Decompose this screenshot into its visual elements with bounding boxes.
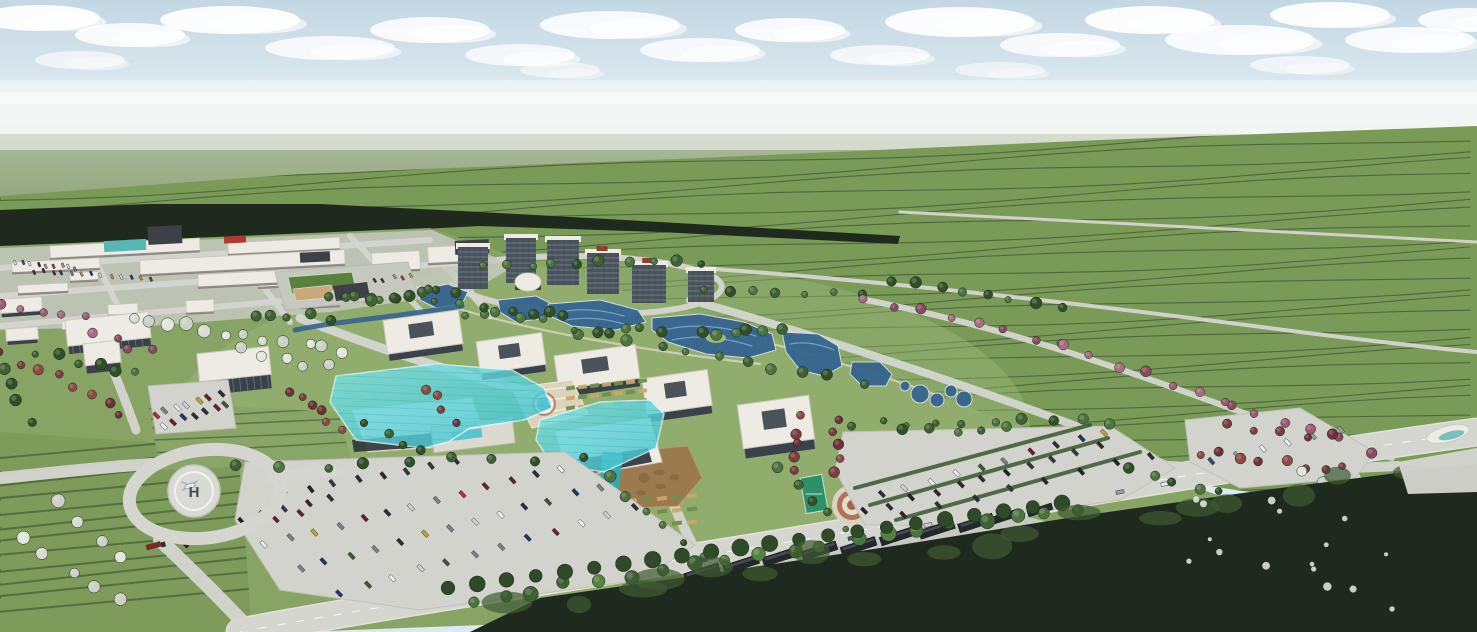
tree-highlight xyxy=(29,419,33,423)
canopy-blob xyxy=(1211,494,1242,513)
helipad-label: H xyxy=(189,484,200,501)
industrial-dark-block xyxy=(148,225,183,245)
white-blossom xyxy=(1350,586,1357,593)
tree-highlight xyxy=(1222,399,1225,402)
tree-highlight xyxy=(1086,352,1089,355)
canopy-blob xyxy=(633,568,685,590)
helipad-h-marking: H xyxy=(189,484,200,501)
tree-highlight xyxy=(358,459,363,464)
tree-highlight xyxy=(286,389,290,393)
tree-highlight xyxy=(1282,420,1286,424)
tree-highlight xyxy=(823,370,828,375)
tree-highlight xyxy=(1368,449,1373,454)
white-blossom xyxy=(1216,549,1222,555)
tree-highlight xyxy=(406,458,411,463)
tree-highlight xyxy=(594,576,600,582)
tree-highlight xyxy=(1196,485,1201,490)
tree-highlight xyxy=(797,412,801,416)
hedge-bush xyxy=(732,539,749,556)
canopy-blob xyxy=(1000,526,1039,542)
tree-highlight xyxy=(699,261,702,264)
hedge-bush xyxy=(851,525,864,538)
cloud xyxy=(1131,14,1222,34)
tree-highlight xyxy=(621,493,626,498)
soil-patch xyxy=(636,490,646,495)
cloud xyxy=(22,13,106,31)
tree-highlight xyxy=(58,312,61,315)
tree-highlight xyxy=(881,418,884,421)
tree-highlight xyxy=(958,421,961,424)
tree-highlight xyxy=(69,384,73,388)
tree-highlight xyxy=(1079,415,1084,420)
horizon-haze-core xyxy=(0,92,1477,134)
tree-highlight xyxy=(837,456,841,460)
tree-highlight xyxy=(985,291,989,295)
tree-highlight xyxy=(773,463,778,468)
hedge-bush xyxy=(909,517,922,530)
canopy-blob xyxy=(1324,467,1351,485)
tree-highlight xyxy=(462,313,465,316)
cloud xyxy=(67,58,130,71)
hedge-bush xyxy=(499,573,514,588)
tree-highlight xyxy=(1198,452,1201,455)
white-blossom xyxy=(1277,509,1282,514)
tree-highlight xyxy=(993,419,996,422)
tree-highlight xyxy=(258,352,263,357)
cloud xyxy=(1042,41,1126,58)
tree-highlight xyxy=(792,430,797,435)
cloud xyxy=(774,26,851,43)
tree-highlight xyxy=(149,346,153,350)
soil-patch xyxy=(670,474,680,480)
pond xyxy=(900,381,910,391)
tree-highlight xyxy=(644,509,647,512)
cloud xyxy=(682,46,766,63)
tree-highlight xyxy=(825,509,829,513)
tree-highlight xyxy=(323,419,326,422)
tree-highlight xyxy=(199,326,205,332)
tree-highlight xyxy=(1116,364,1121,369)
tree-highlight xyxy=(976,319,980,323)
tree-highlight xyxy=(89,391,93,395)
tree-highlight xyxy=(53,496,59,502)
cloud xyxy=(114,31,191,48)
soil-patch xyxy=(639,473,650,483)
tree-highlight xyxy=(1305,435,1308,438)
tree-highlight xyxy=(830,429,834,433)
canopy-blob xyxy=(794,540,830,564)
tree-highlight xyxy=(343,294,347,298)
tree-highlight xyxy=(239,331,243,335)
tree-highlight xyxy=(34,366,39,371)
glass-roof-building xyxy=(104,239,147,252)
tree-highlight xyxy=(606,472,611,477)
tree-highlight xyxy=(452,289,457,294)
white-blossom xyxy=(1208,537,1212,541)
tree-highlight xyxy=(115,336,118,339)
tree-highlight xyxy=(299,363,303,367)
hedge-bush xyxy=(996,504,1011,519)
tree-highlight xyxy=(741,325,746,330)
white-blossom xyxy=(1389,606,1394,611)
pond xyxy=(930,393,944,407)
tree-highlight xyxy=(307,309,312,314)
tree-highlight xyxy=(627,572,634,579)
tree-highlight xyxy=(98,537,103,542)
tree-highlight xyxy=(163,319,169,325)
tree-highlight xyxy=(860,296,864,300)
tree-highlight xyxy=(73,518,78,523)
tree-highlight xyxy=(18,362,21,365)
tree-highlight xyxy=(1224,420,1228,424)
tree-highlight xyxy=(1106,420,1111,425)
tree-highlight xyxy=(831,289,834,292)
tree-highlight xyxy=(470,598,475,603)
tree-highlight xyxy=(1013,510,1019,516)
tree-highlight xyxy=(503,261,507,265)
tree-highlight xyxy=(390,294,395,299)
tree-highlight xyxy=(891,304,895,308)
tree-highlight xyxy=(7,379,12,384)
tree-highlight xyxy=(531,264,534,267)
tree-highlight xyxy=(1236,454,1241,459)
tree-highlight xyxy=(1017,414,1022,419)
tree-highlight xyxy=(778,325,783,330)
tree-highlight xyxy=(759,327,764,332)
tree-highlight xyxy=(361,420,364,423)
tree-highlight xyxy=(791,467,795,471)
tree-highlight xyxy=(830,468,835,473)
tree-highlight xyxy=(525,588,532,595)
tree-highlight xyxy=(1307,425,1312,430)
tree-highlight xyxy=(1050,417,1054,421)
hedge-bush xyxy=(557,564,572,579)
tree-highlight xyxy=(530,310,535,315)
tree-highlight xyxy=(284,315,287,318)
red-accent-building xyxy=(224,235,246,243)
tree-highlight xyxy=(350,292,355,297)
hedge-bush xyxy=(880,521,893,534)
tree-highlight xyxy=(252,312,257,317)
tree-highlight xyxy=(488,455,492,459)
tree-highlight xyxy=(1152,472,1156,476)
tree-highlight xyxy=(71,569,75,573)
tree-highlight xyxy=(861,381,865,385)
canopy-blob xyxy=(742,566,778,581)
canopy-blob xyxy=(1283,484,1315,506)
tree-highlight xyxy=(237,343,242,348)
cloud xyxy=(1285,63,1355,76)
tree-highlight xyxy=(933,421,936,424)
tree-highlight xyxy=(939,283,944,288)
canopy-blob xyxy=(927,545,961,560)
tree-highlight xyxy=(744,358,748,362)
tree-highlight xyxy=(978,428,981,431)
tree-highlight xyxy=(911,278,916,283)
tree-highlight xyxy=(726,288,731,293)
white-blossom xyxy=(1186,559,1191,564)
tree-highlight xyxy=(794,440,798,444)
tree-highlight xyxy=(132,369,135,372)
tree-highlight xyxy=(89,582,95,588)
tree-highlight xyxy=(636,324,640,328)
tree-highlight xyxy=(116,594,122,600)
tree-highlight xyxy=(1003,423,1008,428)
tree-highlight xyxy=(771,289,775,293)
tree-highlight xyxy=(547,260,551,264)
tree-highlight xyxy=(594,329,599,334)
tree-highlight xyxy=(454,420,457,423)
tree-highlight xyxy=(681,540,684,543)
white-blossom xyxy=(1268,497,1276,505)
tree-highlight xyxy=(338,348,343,353)
dome xyxy=(515,273,541,291)
tree-highlight xyxy=(18,306,21,309)
canopy-blob xyxy=(567,596,592,613)
tree-highlight xyxy=(959,289,963,293)
cloud xyxy=(311,44,402,61)
tree-highlight xyxy=(1251,411,1255,415)
tree-highlight xyxy=(231,461,236,466)
building-roof xyxy=(6,327,39,341)
tree-highlight xyxy=(712,330,717,335)
tree-highlight xyxy=(111,367,116,372)
tree-highlight xyxy=(325,293,329,297)
tree-highlight xyxy=(790,453,795,458)
pond xyxy=(911,385,929,403)
cloud xyxy=(504,51,581,66)
tree-highlight xyxy=(949,315,952,318)
tree-highlight xyxy=(888,278,892,282)
rooftop-core xyxy=(761,408,786,430)
tree-highlight xyxy=(836,417,840,421)
canopy-blob xyxy=(690,557,733,578)
tree-highlight xyxy=(572,328,575,331)
tree-highlight xyxy=(917,305,922,310)
tree-highlight xyxy=(658,328,663,333)
tree-highlight xyxy=(457,300,461,304)
tree-highlight xyxy=(418,288,423,293)
tree-highlight xyxy=(1339,464,1342,467)
canopy-blob xyxy=(847,552,881,566)
tree-highlight xyxy=(1142,367,1147,372)
tree-highlight xyxy=(97,360,102,365)
tree-highlight xyxy=(144,317,149,322)
tree-highlight xyxy=(898,425,903,430)
tree-highlight xyxy=(386,430,390,434)
tree-highlight xyxy=(480,263,483,266)
tree-highlight xyxy=(116,553,121,558)
tree-highlight xyxy=(1006,297,1009,300)
tree-highlight xyxy=(573,261,577,265)
tree-highlight xyxy=(834,440,839,445)
tree-highlight xyxy=(300,394,303,397)
hedge-bush xyxy=(441,581,455,595)
white-blossom xyxy=(1262,562,1270,570)
tree-highlight xyxy=(283,354,288,359)
tree-highlight xyxy=(750,287,754,291)
rendering-canvas: H xyxy=(0,0,1477,632)
tree-highlight xyxy=(37,549,42,554)
tree-highlight xyxy=(275,463,280,468)
hedge-bush xyxy=(762,535,778,551)
tree-highlight xyxy=(843,527,846,530)
tree-highlight xyxy=(1276,428,1280,432)
tree-highlight xyxy=(434,392,438,396)
cloud xyxy=(1312,10,1396,28)
tree-highlight xyxy=(181,318,187,324)
tree-highlight xyxy=(433,287,437,291)
white-blossom xyxy=(1200,500,1207,507)
tree-highlight xyxy=(809,498,813,502)
tree-highlight xyxy=(622,325,626,329)
tree-highlight xyxy=(1215,448,1219,452)
tree-highlight xyxy=(339,427,342,430)
tree-highlight xyxy=(367,296,372,301)
tree-highlight xyxy=(266,311,271,316)
tree-highlight xyxy=(767,365,772,370)
building xyxy=(737,395,816,458)
tree-highlight xyxy=(259,337,263,341)
masterplan-aerial-rendering: H xyxy=(0,0,1477,632)
tree-highlight xyxy=(41,310,45,314)
cloud xyxy=(412,25,496,43)
tree-highlight xyxy=(798,368,803,373)
cloud xyxy=(209,14,307,34)
tree-highlight xyxy=(223,332,227,336)
pond xyxy=(945,385,957,397)
canopy-blob xyxy=(1139,511,1182,525)
tree-highlight xyxy=(802,292,805,295)
hedge-bush xyxy=(529,569,542,582)
tree-highlight xyxy=(318,407,322,411)
tree-highlight xyxy=(317,341,322,346)
tree-highlight xyxy=(55,350,60,355)
hedge-bush xyxy=(674,548,689,563)
pond xyxy=(956,391,972,407)
industrial-dark-block xyxy=(300,251,330,263)
tree-highlight xyxy=(1251,428,1254,431)
tree-highlight xyxy=(652,259,655,262)
tree-highlight xyxy=(11,396,16,401)
tree-highlight xyxy=(1329,430,1334,435)
white-blossom xyxy=(1342,516,1348,522)
tree-highlight xyxy=(1255,458,1259,462)
tree-highlight xyxy=(716,353,720,357)
tree-highlight xyxy=(1170,383,1173,386)
white-blossom xyxy=(1324,542,1329,547)
hedge-bush xyxy=(469,576,485,592)
tree-highlight xyxy=(581,454,585,458)
hedge-bush xyxy=(588,561,601,574)
tree-highlight xyxy=(1000,326,1003,329)
tree-highlight xyxy=(76,361,80,365)
tower-roof-feature xyxy=(597,246,608,251)
tree-highlight xyxy=(606,330,610,334)
hedge-bush xyxy=(937,511,952,526)
tree-highlight xyxy=(622,336,627,341)
cloud xyxy=(589,19,687,39)
tree-highlight xyxy=(438,407,441,410)
tree-highlight xyxy=(405,292,410,297)
tree-highlight xyxy=(626,258,630,262)
tree-highlight xyxy=(124,346,128,350)
tree-highlight xyxy=(559,312,564,317)
tree-highlight xyxy=(1032,299,1037,304)
tree-highlight xyxy=(326,465,330,469)
white-blossom xyxy=(1384,552,1388,556)
tree-highlight xyxy=(926,425,930,429)
tree-highlight xyxy=(116,412,119,415)
tree-highlight xyxy=(859,291,863,295)
canopy-blob xyxy=(1057,505,1101,520)
tree-highlight xyxy=(56,371,60,375)
white-blossom xyxy=(1323,582,1331,590)
tree-highlight xyxy=(660,522,663,525)
tree-highlight xyxy=(1125,464,1130,469)
tree-highlight xyxy=(795,481,799,485)
tree-highlight xyxy=(1033,338,1037,342)
tree-highlight xyxy=(491,308,495,312)
cloud xyxy=(1218,34,1323,55)
building xyxy=(6,327,39,345)
tree-highlight xyxy=(545,307,550,312)
white-blossom xyxy=(1311,566,1316,571)
tree-highlight xyxy=(83,313,86,316)
tree-highlight xyxy=(510,308,514,312)
tree-highlight xyxy=(594,256,599,261)
tree-highlight xyxy=(517,314,521,318)
tree-highlight xyxy=(1196,388,1200,392)
hedge-bush xyxy=(616,556,632,572)
canopy-blob xyxy=(482,592,533,614)
tree-highlight xyxy=(327,317,332,322)
hedge-bush xyxy=(821,529,834,542)
cloud xyxy=(865,52,935,66)
tree-highlight xyxy=(698,328,703,333)
tree-highlight xyxy=(672,256,677,261)
tree-highlight xyxy=(1039,509,1044,514)
tree-highlight xyxy=(701,287,704,290)
tree-highlight xyxy=(733,329,737,333)
rooftop-core xyxy=(664,381,687,399)
cloud xyxy=(938,16,1043,37)
tree-highlight xyxy=(660,343,664,347)
tree-highlight xyxy=(325,361,330,366)
hedge-bush xyxy=(644,551,660,567)
tree-highlight xyxy=(1298,467,1303,472)
tree-highlight xyxy=(1059,304,1063,308)
tree-highlight xyxy=(423,386,427,390)
tree-highlight xyxy=(1283,457,1288,462)
hedge-bush xyxy=(1026,501,1039,514)
tree-highlight xyxy=(540,316,544,320)
cloud xyxy=(548,68,604,79)
tree-highlight xyxy=(309,402,313,406)
tree-highlight xyxy=(307,340,311,344)
tree-highlight xyxy=(425,286,429,290)
tree-highlight xyxy=(1216,488,1219,491)
tree-highlight xyxy=(107,399,111,403)
tree-highlight xyxy=(955,429,959,433)
tree-highlight xyxy=(0,364,5,369)
cloud xyxy=(987,68,1050,79)
tree-highlight xyxy=(432,299,435,302)
tree-highlight xyxy=(1323,466,1327,470)
tree-highlight xyxy=(89,329,93,333)
tree-highlight xyxy=(1168,479,1172,483)
tree-highlight xyxy=(982,515,989,522)
